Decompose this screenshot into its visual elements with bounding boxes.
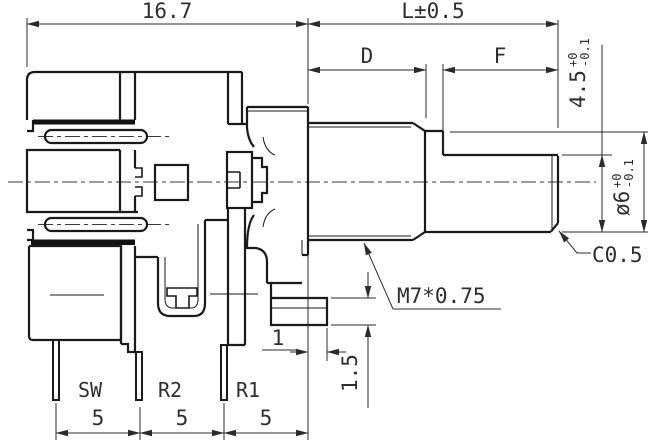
wafer-band-upper (33, 120, 135, 125)
label-D: D (361, 44, 374, 68)
label-pitch-1: 5 (92, 406, 105, 430)
switch-column (121, 246, 135, 352)
label-flat-height: 4.5 +0 -0.1 (566, 38, 592, 108)
shaft-outline (425, 131, 558, 232)
thread-lines (308, 127, 411, 236)
left-notch-upper (27, 120, 33, 131)
face-left-upper (247, 107, 254, 147)
label-flat-height-tol-minus: -0.1 (578, 38, 592, 67)
pin-r2 (136, 352, 142, 400)
label-leg-offset: 1 (272, 326, 285, 350)
leader-chamfer (559, 231, 591, 253)
bushing-and-shaft (308, 123, 558, 240)
bracket-curve (245, 248, 302, 283)
body-top-left-corner (27, 72, 35, 80)
centerlines (8, 137, 596, 296)
label-pitch-2: 5 (176, 406, 189, 430)
technical-drawing-page: 16.7 L±0.5 D F 4.5 +0 -0.1 ø6 +0 -0.1 C0… (0, 0, 649, 447)
rotor-notch (227, 172, 240, 188)
pin-sw (53, 340, 59, 400)
ext-leg-thickness (331, 298, 376, 325)
label-flat-height-value: 4.5 (566, 70, 590, 108)
mounting-leg (271, 283, 327, 325)
label-shaft-diameter-value: ø6 (610, 191, 634, 216)
label-leg-thickness-value: 1.5 (338, 354, 362, 392)
switch-block (29, 246, 121, 340)
label-pin-sw: SW (78, 378, 103, 402)
face-plate (245, 107, 327, 325)
label-pitch-3: 5 (260, 406, 273, 430)
potentiometer-drawing: 16.7 L±0.5 D F 4.5 +0 -0.1 ø6 +0 -0.1 C0… (0, 0, 649, 447)
label-shaft-length: L±0.5 (401, 0, 464, 23)
face-left-lower (247, 215, 254, 248)
middle-block-outline (27, 150, 138, 212)
hub-square (155, 165, 188, 200)
label-pin-r1: R1 (236, 378, 260, 402)
left-notch-lower (27, 230, 33, 240)
label-shaft-diameter-tol-minus: -0.1 (622, 159, 636, 188)
t-slot (167, 288, 197, 308)
r1-column (228, 208, 245, 345)
label-F: F (494, 44, 507, 68)
label-thread: M7*0.75 (397, 284, 486, 308)
rotor-right-profile (252, 158, 267, 202)
housing-body (27, 72, 275, 352)
threaded-bushing (308, 123, 425, 240)
label-chamfer: C0.5 (592, 243, 643, 267)
label-pin-r2: R2 (158, 378, 182, 402)
label-shaft-diameter: ø6 +0 -0.1 (610, 159, 636, 216)
wafer-band-lower (31, 240, 135, 246)
label-body-width: 16.7 (142, 0, 193, 23)
label-leg-thickness: 1.5 (338, 354, 362, 392)
pin-r1 (221, 345, 227, 400)
